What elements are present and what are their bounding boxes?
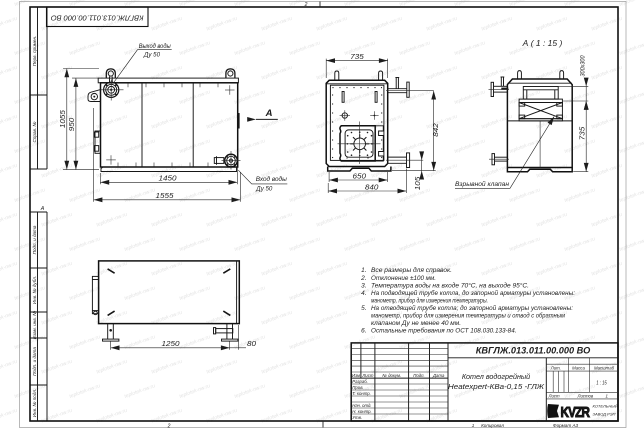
svg-text:КОТЕЛЬНЫЙ: КОТЕЛЬНЫЙ — [593, 404, 618, 409]
svg-text:950: 950 — [69, 118, 76, 132]
svg-text:2: 2 — [304, 2, 308, 8]
svg-text:А: А — [265, 108, 273, 119]
svg-text:Н. контр.: Н. контр. — [352, 409, 371, 414]
svg-text:Котел водогрейный: Котел водогрейный — [462, 372, 530, 381]
svg-text:Heatexpert-КВа-0,15 -ГЛЖ: Heatexpert-КВа-0,15 -ГЛЖ — [448, 382, 544, 391]
svg-text:2: 2 — [167, 424, 171, 430]
svg-text:Взрывной клапан: Взрывной клапан — [455, 181, 510, 188]
svg-text:Дата: Дата — [432, 373, 445, 378]
svg-text:1450: 1450 — [159, 176, 177, 183]
svg-text:4.: 4. — [361, 290, 366, 297]
svg-text:Остальные требования по ОСТ 10: Остальные требования по ОСТ 108.030.133-… — [371, 327, 517, 335]
svg-text:Инв. № подл.: Инв. № подл. — [32, 389, 37, 418]
svg-text:300х300: 300х300 — [580, 55, 587, 76]
svg-text:80: 80 — [247, 341, 256, 348]
svg-text:735: 735 — [580, 127, 587, 141]
svg-text:А ( 1 : 15 ): А ( 1 : 15 ) — [522, 38, 563, 48]
svg-text:Подп. и дата: Подп. и дата — [32, 225, 37, 254]
svg-text:1 : 15: 1 : 15 — [596, 380, 607, 386]
svg-text:КВГЛЖ.013.011.00.000 ВО: КВГЛЖ.013.011.00.000 ВО — [476, 346, 590, 356]
svg-text:Отклонение ±100 мм.: Отклонение ±100 мм. — [371, 275, 436, 282]
svg-text:Разраб.: Разраб. — [352, 379, 368, 384]
svg-text:Масса: Масса — [572, 366, 585, 371]
svg-text:5.: 5. — [361, 305, 366, 312]
svg-text:1555: 1555 — [156, 193, 174, 200]
svg-text:Т. контр.: Т. контр. — [352, 391, 371, 396]
svg-text:Ду 50: Ду 50 — [255, 186, 273, 193]
svg-text:6.: 6. — [361, 328, 366, 335]
svg-text:Нач. отд.: Нач. отд. — [352, 403, 371, 408]
svg-text:Лит.: Лит. — [550, 366, 561, 371]
svg-text:А: А — [40, 206, 45, 212]
svg-text:Листов: Листов — [577, 394, 594, 399]
svg-text:Подп. и дата: Подп. и дата — [32, 347, 37, 376]
svg-text:Вход воды: Вход воды — [256, 176, 287, 183]
svg-text:840: 840 — [365, 184, 379, 191]
svg-text:ЗАВОД РЭП: ЗАВОД РЭП — [593, 412, 616, 417]
svg-text:650: 650 — [353, 173, 367, 180]
svg-text:1: 1 — [472, 423, 475, 428]
svg-text:Утв.: Утв. — [352, 415, 362, 420]
svg-text:Пров.: Пров. — [352, 385, 363, 390]
svg-text:Масштаб: Масштаб — [594, 366, 615, 371]
svg-text:Лист: Лист — [548, 394, 560, 399]
svg-text:На отводящей трубе котла; до з: На отводящей трубе котла; до запорной ар… — [371, 304, 573, 312]
svg-text:КВГЛЖ.013.011.00.000 ВО: КВГЛЖ.013.011.00.000 ВО — [51, 13, 144, 22]
svg-text:Перв. примен.: Перв. примен. — [32, 36, 37, 67]
svg-text:1055: 1055 — [60, 110, 67, 128]
svg-text:Справ. №: Справ. № — [32, 122, 37, 143]
svg-text:KVZR: KVZR — [561, 403, 591, 420]
svg-text:Температура воды на входе 70°С: Температура воды на входе 70°С, на выход… — [371, 281, 529, 289]
svg-text:Подп.: Подп. — [413, 373, 424, 378]
svg-text:3.: 3. — [361, 282, 366, 289]
svg-text:клапаном Ду не менее 40 мм.: клапаном Ду не менее 40 мм. — [371, 320, 461, 327]
svg-text:105: 105 — [415, 177, 422, 191]
svg-text:1.: 1. — [361, 267, 366, 274]
svg-text:Выход воды: Выход воды — [139, 43, 171, 50]
svg-text:Лист: Лист — [361, 373, 373, 378]
svg-text:Ду 50: Ду 50 — [143, 52, 161, 59]
svg-text:Копировал: Копировал — [481, 423, 504, 428]
svg-text:Инв. № дубл.: Инв. № дубл. — [32, 276, 37, 304]
svg-text:На подводящей трубе котла, до: На подводящей трубе котла, до запорной а… — [371, 289, 575, 297]
svg-text:Формат А3: Формат А3 — [553, 423, 579, 428]
svg-text:1250: 1250 — [162, 341, 180, 348]
svg-text:манометр, прибор для измерения: манометр, прибор для измерения температу… — [371, 312, 566, 320]
svg-text:Все размеры для справок.: Все размеры для справок. — [371, 266, 452, 274]
svg-text:манометр, прибор для измерения: манометр, прибор для измерения температу… — [371, 296, 488, 304]
svg-text:735: 735 — [350, 54, 364, 61]
svg-text:Взам. инв. №: Взам. инв. № — [32, 311, 37, 339]
svg-text:2.: 2. — [360, 275, 366, 282]
svg-text:Изм: Изм — [352, 373, 360, 378]
svg-text:842: 842 — [433, 123, 440, 137]
svg-text:№ докум.: № докум. — [382, 373, 401, 378]
